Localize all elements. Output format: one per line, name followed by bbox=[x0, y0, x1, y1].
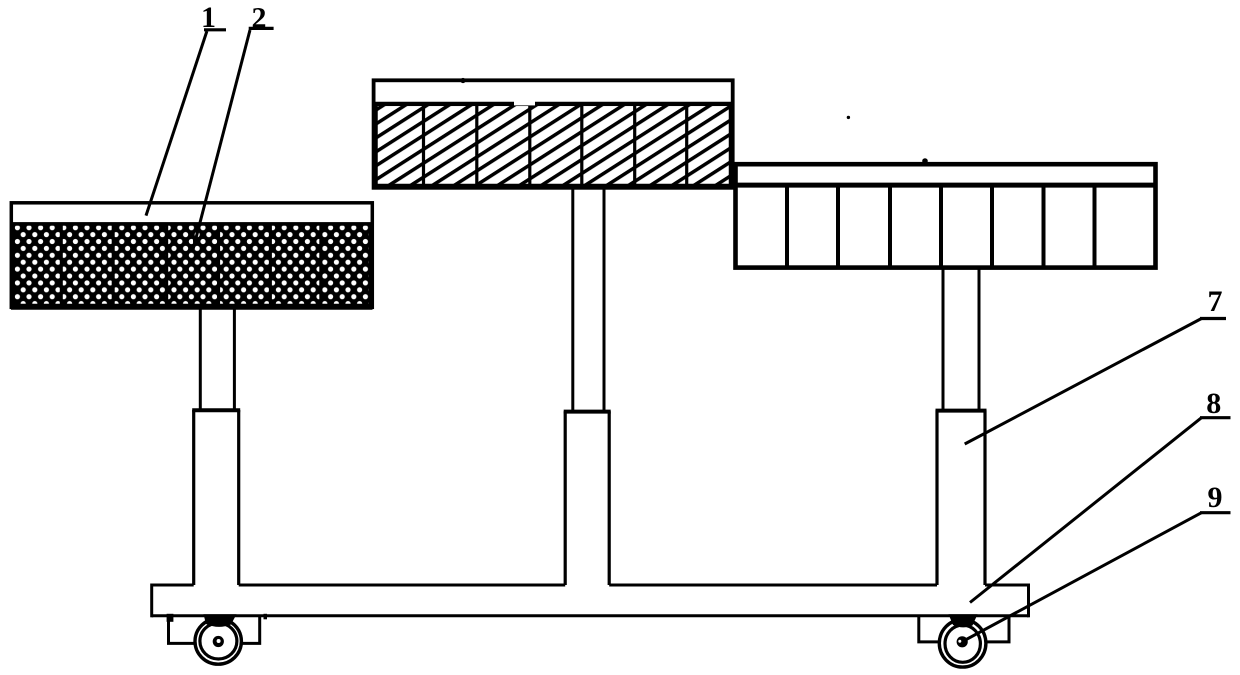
svg-text:9: 9 bbox=[1208, 481, 1223, 514]
svg-text:8: 8 bbox=[1206, 387, 1221, 420]
svg-text:7: 7 bbox=[1208, 285, 1223, 318]
svg-text:2: 2 bbox=[252, 2, 267, 35]
svg-text:1: 1 bbox=[201, 1, 216, 34]
